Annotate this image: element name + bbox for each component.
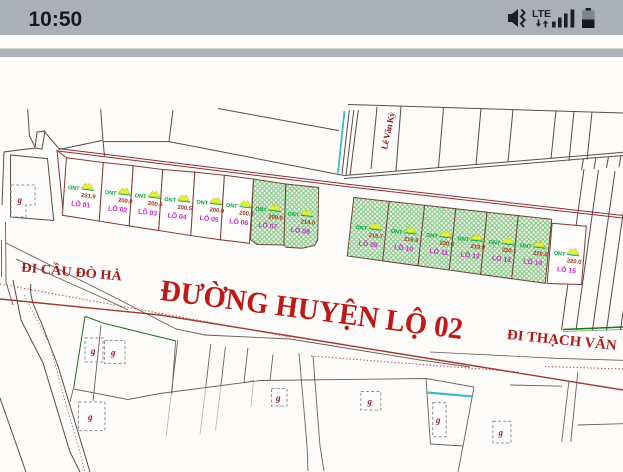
svg-text:10:50: 10:50 bbox=[29, 8, 83, 31]
svg-text:g: g bbox=[110, 348, 116, 358]
svg-text:g: g bbox=[87, 412, 93, 422]
svg-text:g: g bbox=[17, 195, 23, 205]
svg-text:LTE: LTE bbox=[532, 8, 551, 20]
svg-text:g: g bbox=[367, 397, 373, 407]
svg-text:ĐI CẦU ĐÒ HÀ: ĐI CẦU ĐÒ HÀ bbox=[21, 260, 123, 284]
svg-text:g: g bbox=[275, 393, 281, 403]
svg-text:g: g bbox=[498, 428, 504, 438]
svg-text:Lê Văn Kỳ: Lê Văn Kỳ bbox=[379, 111, 397, 151]
svg-text:g: g bbox=[90, 346, 96, 356]
svg-text:g: g bbox=[435, 415, 441, 425]
